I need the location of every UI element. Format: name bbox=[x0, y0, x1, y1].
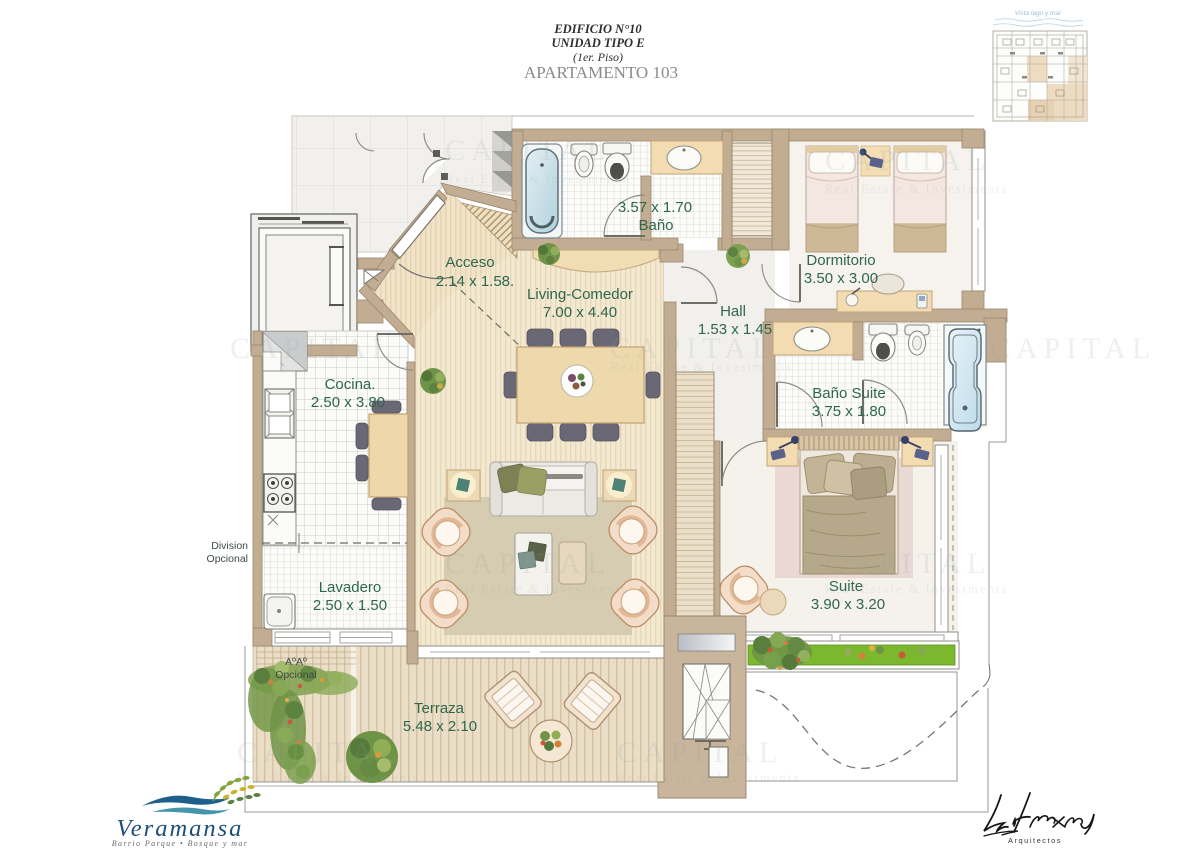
svg-text:2.50 x 1.50: 2.50 x 1.50 bbox=[313, 597, 387, 614]
svg-text:3.90 x 3.20: 3.90 x 3.20 bbox=[811, 596, 885, 613]
svg-text:2.50 x 3.80: 2.50 x 3.80 bbox=[311, 394, 385, 411]
svg-text:Barrio Parque • Bosque y mar: Barrio Parque • Bosque y mar bbox=[112, 839, 249, 848]
svg-text:CAPITAL: CAPITAL bbox=[445, 547, 611, 580]
svg-text:7.00 x 4.40: 7.00 x 4.40 bbox=[543, 304, 617, 321]
svg-text:(1er. Piso): (1er. Piso) bbox=[573, 50, 623, 64]
svg-text:EDIFICIO N°10: EDIFICIO N°10 bbox=[553, 22, 642, 36]
svg-text:Real Estate & Investments: Real Estate & Investments bbox=[617, 771, 800, 785]
svg-text:CAPITAL: CAPITAL bbox=[990, 332, 1156, 365]
svg-text:Real Estate & Investments: Real Estate & Investments bbox=[237, 771, 420, 785]
svg-text:3.50 x 3.00: 3.50 x 3.00 bbox=[804, 270, 878, 287]
svg-text:Opcional: Opcional bbox=[207, 553, 248, 565]
svg-text:Lavadero: Lavadero bbox=[319, 579, 382, 596]
svg-text:Division: Division bbox=[211, 540, 248, 552]
svg-text:2.14 x 1.58.: 2.14 x 1.58. bbox=[436, 273, 514, 290]
svg-text:Opcional: Opcional bbox=[275, 669, 316, 681]
svg-text:CAPITAL: CAPITAL bbox=[825, 547, 991, 580]
svg-text:CAPITAL: CAPITAL bbox=[237, 736, 403, 769]
svg-text:Acceso: Acceso bbox=[445, 254, 494, 271]
svg-text:3.57 x 1.70: 3.57 x 1.70 bbox=[618, 199, 692, 216]
svg-text:Hall: Hall bbox=[720, 303, 746, 320]
svg-text:Baño Suite: Baño Suite bbox=[812, 385, 885, 402]
svg-text:Cocina.: Cocina. bbox=[325, 376, 376, 393]
svg-text:Real Estate & Investments: Real Estate & Investments bbox=[610, 360, 793, 374]
svg-text:Arquitectos: Arquitectos bbox=[1008, 836, 1062, 845]
svg-text:Veramansa: Veramansa bbox=[117, 815, 244, 842]
svg-text:Real Estate & Investments: Real Estate & Investments bbox=[825, 182, 1008, 196]
svg-text:Real Estate & Investments: Real Estate & Investments bbox=[825, 582, 1008, 596]
svg-text:5.48 x 2.10: 5.48 x 2.10 bbox=[403, 718, 477, 735]
svg-text:Dormitorio: Dormitorio bbox=[806, 252, 875, 269]
svg-text:Real Estate & Investments: Real Estate & Investments bbox=[445, 582, 628, 596]
svg-text:Terraza: Terraza bbox=[414, 700, 465, 717]
svg-text:AºAº: AºAº bbox=[285, 656, 307, 668]
svg-text:CAPITAL: CAPITAL bbox=[825, 144, 991, 177]
svg-text:Real Estate & Investments: Real Estate & Investments bbox=[445, 172, 628, 186]
svg-text:UNIDAD TIPO E: UNIDAD TIPO E bbox=[551, 36, 644, 50]
svg-text:Baño: Baño bbox=[638, 217, 673, 234]
svg-text:3.75 x 1.80: 3.75 x 1.80 bbox=[812, 403, 886, 420]
svg-text:Vista lago y mar: Vista lago y mar bbox=[1015, 10, 1062, 17]
svg-text:CAPITAL: CAPITAL bbox=[617, 736, 783, 769]
svg-text:CAPITAL: CAPITAL bbox=[445, 134, 611, 167]
svg-text:Living-Comedor: Living-Comedor bbox=[527, 286, 633, 303]
svg-text:CAPITAL: CAPITAL bbox=[230, 332, 396, 365]
svg-text:APARTAMENTO 103: APARTAMENTO 103 bbox=[524, 63, 678, 82]
